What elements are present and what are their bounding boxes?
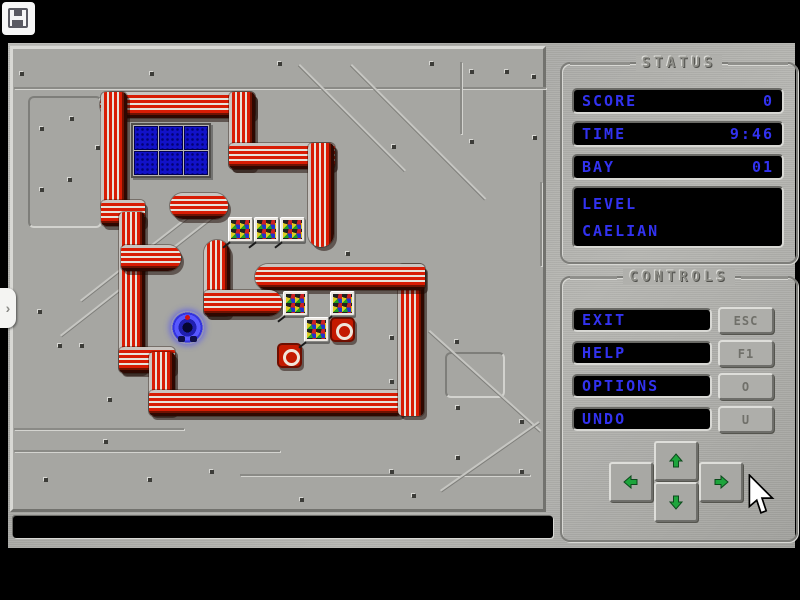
button-help[interactable]: HELP [572,341,712,365]
button-undo[interactable]: UNDO [572,407,712,431]
status-value: 0 [763,92,774,110]
title-line [741,276,788,279]
floppy-label [12,20,23,26]
status-label: TIME [582,125,626,143]
side-drawer-tab[interactable]: › [0,288,16,328]
message-bar [13,516,553,538]
save-button[interactable] [2,2,35,35]
floppy-disk-icon [8,8,28,28]
button-label: UNDO [582,410,626,428]
arrow-up-button[interactable] [654,441,698,481]
title-line [728,62,788,65]
key-f1-button[interactable]: F1 [718,340,774,367]
status-row-bay: BAY01 [572,154,784,180]
controls-titlebar: CONTROLS [570,269,788,285]
arrow-down-button[interactable] [654,482,698,522]
button-label: HELP [582,344,626,362]
key-o-button[interactable]: O [718,373,774,400]
arrow-up-icon [666,451,686,471]
status-row-score: SCORE0 [572,88,784,114]
status-label: BAY [582,158,615,176]
arrow-right-button[interactable] [699,462,743,502]
controls-panel: CONTROLS EXITESCHELPF1OPTIONSOUNDOU [560,276,798,542]
button-label: EXIT [582,311,626,329]
status-title: STATUS [636,55,723,71]
controls-title: CONTROLS [623,269,734,285]
title-line [570,276,617,279]
status-value: 9:46 [730,125,774,143]
floppy-shutter [14,10,22,16]
button-exit[interactable]: EXIT [572,308,712,332]
button-label: OPTIONS [582,377,659,395]
key-u-button[interactable]: U [718,406,774,433]
level-label: LEVEL [582,195,637,213]
title-line [570,62,630,65]
key-esc-button[interactable]: ESC [718,307,774,334]
game-board [10,46,546,512]
status-row-time: TIME9:46 [572,121,784,147]
status-titlebar: STATUS [570,55,788,71]
arrow-down-icon [666,492,686,512]
level-display: LEVEL CAELIAN [572,186,784,248]
arrow-right-icon [711,472,731,492]
status-value: 01 [752,158,774,176]
arrow-left-button[interactable] [609,462,653,502]
button-options[interactable]: OPTIONS [572,374,712,398]
game-window: STATUS SCORE0TIME9:46BAY01 LEVEL CAELIAN… [0,0,800,600]
status-panel: STATUS SCORE0TIME9:46BAY01 LEVEL CAELIAN [560,62,798,264]
chevron-right-icon: › [6,300,11,316]
arrow-left-icon [621,472,641,492]
level-name: CAELIAN [582,222,659,240]
status-label: SCORE [582,92,637,110]
